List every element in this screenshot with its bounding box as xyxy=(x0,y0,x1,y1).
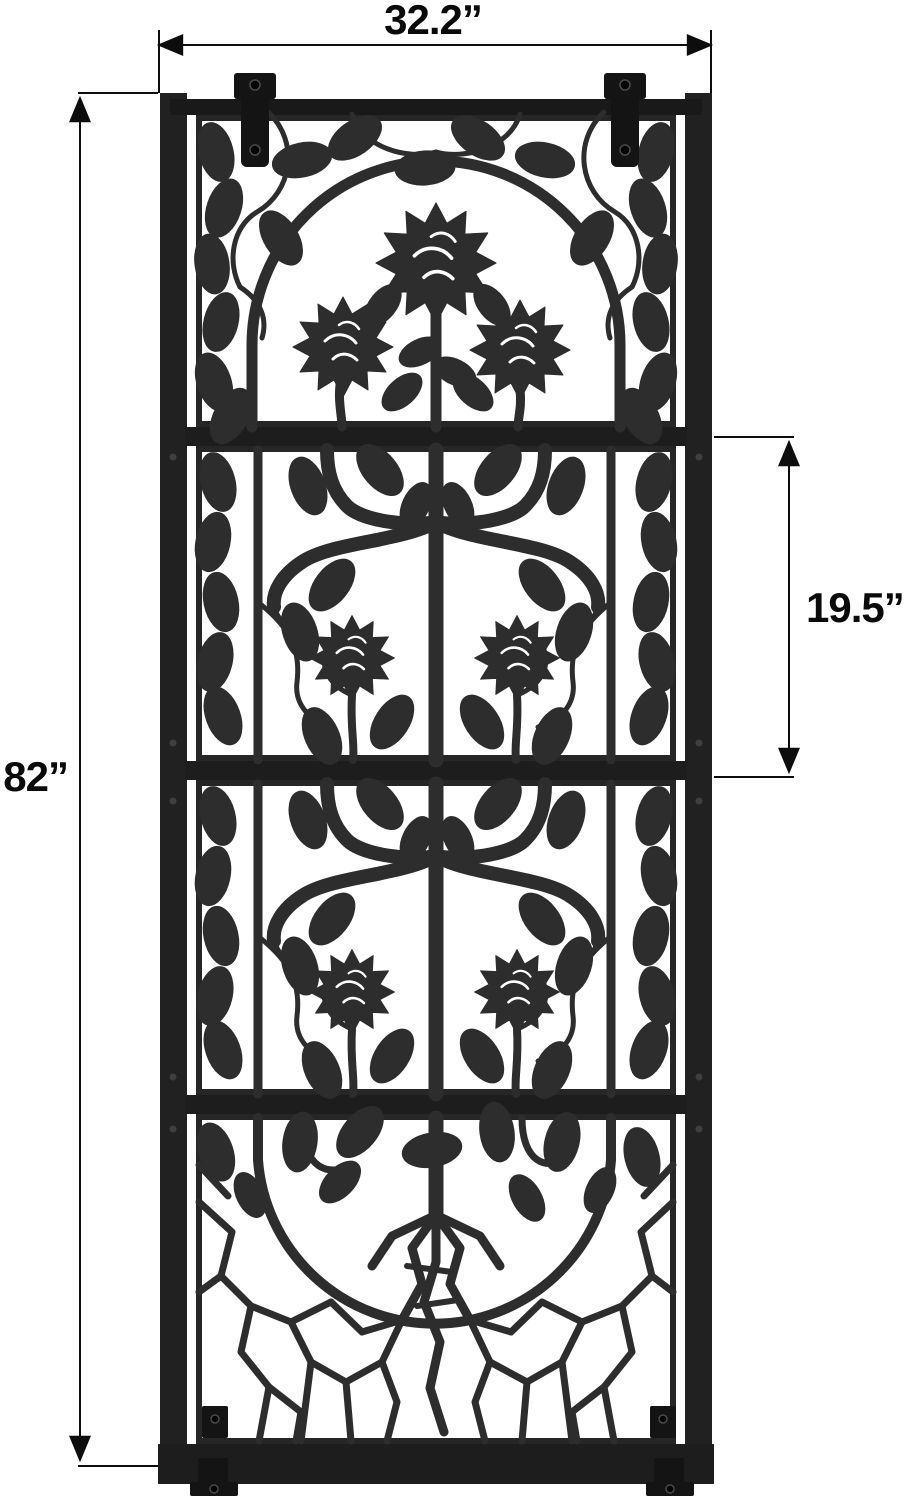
screw-hole xyxy=(210,1485,218,1493)
section-dimension-line xyxy=(714,437,794,777)
screw-hole xyxy=(211,1415,219,1423)
section-vines-upper xyxy=(190,436,682,770)
left-post xyxy=(160,93,187,1483)
screw-hole xyxy=(620,145,630,155)
section-dimension-label: 19.5” xyxy=(806,584,904,632)
screw-hole xyxy=(659,1415,667,1423)
height-dimension-label: 82” xyxy=(3,753,68,801)
section-vines-lower xyxy=(190,770,682,1104)
product-dimension-diagram: 32.2” 82” 19.5” xyxy=(0,0,912,1500)
section-roots xyxy=(191,1098,673,1441)
width-dimension-label: 32.2” xyxy=(384,0,482,44)
right-post xyxy=(685,93,712,1483)
trellis-panel-illustration xyxy=(0,0,912,1500)
screw-hole xyxy=(250,80,260,90)
screw-hole xyxy=(666,1485,674,1493)
bottom-rail xyxy=(158,1444,714,1484)
mounting-plate-left xyxy=(202,1406,228,1438)
screw-hole xyxy=(250,145,260,155)
height-dimension-line xyxy=(78,93,158,1466)
mounting-plate-right xyxy=(650,1406,676,1438)
screw-hole xyxy=(620,80,630,90)
